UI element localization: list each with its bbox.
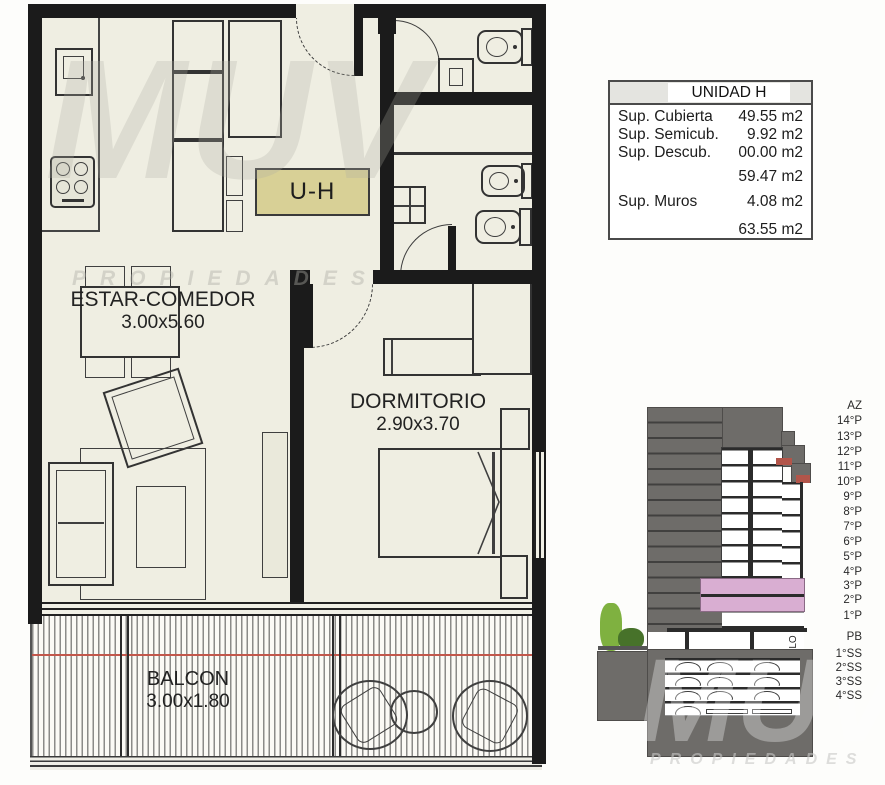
room-name: ESTAR-COMEDOR: [48, 288, 278, 312]
floor-label: 7°P: [812, 521, 862, 533]
pb-side-label: LO: [788, 632, 804, 652]
area-table-header: UNIDAD H: [610, 82, 811, 105]
tv-unit: [262, 432, 288, 578]
floor-stack-right: [782, 482, 800, 578]
toilet-tank: [519, 208, 532, 246]
dining-chair: [85, 266, 125, 288]
area-table-title: UNIDAD H: [668, 83, 790, 102]
floor-label: 5°P: [812, 551, 862, 563]
kitchen-counter: [42, 230, 100, 232]
unit-tag: U-H: [255, 168, 370, 216]
car-icon: [754, 677, 780, 686]
stack-column: [748, 448, 753, 578]
shower-partition: [394, 152, 532, 155]
wardrobe: [472, 275, 532, 375]
nightstand: [500, 555, 528, 599]
row-label: Sup. Semicub.: [618, 126, 719, 144]
floor-label: 1°SS: [812, 648, 862, 660]
row-value: 00.00 m2: [738, 144, 803, 162]
room-name: DORMITORIO: [333, 390, 503, 414]
row-label: Sup. Descub.: [618, 144, 711, 162]
floor-label: 11°P: [812, 461, 862, 473]
wall-segment: [394, 92, 532, 105]
floor-label: AZ: [812, 400, 862, 412]
table-row: Sup. Descub. 00.00 m2: [610, 144, 811, 162]
stove: [50, 156, 95, 208]
floor-label: 1°P: [812, 610, 862, 622]
floor-label: 3°SS: [812, 676, 862, 688]
red-accent: [796, 475, 810, 483]
balcony-red-line: [32, 654, 544, 656]
floor-label: 4°P: [812, 566, 862, 578]
balcony-deck: [30, 616, 542, 756]
vanity: [392, 186, 426, 224]
table-row: Sup. Cubierta 49.55 m2: [610, 108, 811, 126]
car-icon: [707, 677, 733, 686]
kitchen-cabinet: [172, 140, 224, 232]
bath-door-leaf: [448, 226, 456, 276]
floor-label: 8°P: [812, 506, 862, 518]
bedroom-window: [534, 452, 544, 558]
car-icon: [675, 677, 701, 686]
balcony-edge: [800, 482, 803, 578]
table-row: 63.55 m2: [610, 221, 811, 239]
floor-label: PB: [812, 631, 862, 643]
wall-segment: [380, 18, 394, 278]
balcony-glass-doors: [42, 602, 532, 616]
pb-level: [648, 632, 804, 652]
fridge-cabinet: [172, 20, 224, 72]
wall-segment: [290, 270, 304, 616]
row-label: Sup. Cubierta: [618, 108, 713, 126]
bathroom-sink: [438, 58, 474, 94]
balcony-table: [390, 690, 438, 734]
bed: [378, 448, 502, 558]
room-dims: 3.00x1.80: [113, 691, 263, 713]
sidewalk: [598, 646, 648, 650]
dining-chair: [131, 266, 171, 288]
pb-ceiling-slab: [667, 628, 807, 632]
room-dims: 3.00x5.60: [48, 312, 278, 334]
bed-headboard: [492, 452, 495, 554]
building-elevation: LO AZ 14°P 13°P 12°P 11°P 10°P 9°P 8°P 7…: [590, 398, 885, 773]
floor-label: 3°P: [812, 580, 862, 592]
stool: [226, 156, 243, 196]
row-value: 4.08 m2: [747, 193, 803, 211]
desk: [383, 338, 481, 376]
bedroom-door-leaf: [304, 284, 313, 348]
floor-label: 13°P: [812, 431, 862, 443]
room-dims: 2.90x3.70: [333, 414, 503, 436]
floor-label: 4°SS: [812, 690, 862, 702]
area-table: UNIDAD H Sup. Cubierta 49.55 m2 Sup. Sem…: [608, 80, 813, 240]
floor-label: 2°SS: [812, 662, 862, 674]
table-row: 59.47 m2: [610, 168, 811, 186]
car-icon: [754, 691, 780, 700]
lounge-chair: [452, 680, 528, 752]
floor-label: 6°P: [812, 536, 862, 548]
toilet: [475, 210, 521, 244]
storage-unit: [752, 709, 792, 714]
wall-segment: [28, 4, 42, 624]
sofa: [48, 462, 114, 586]
floor-label: 9°P: [812, 491, 862, 503]
building-left-tower: [648, 408, 722, 650]
room-name: BALCON: [113, 668, 263, 691]
car-icon: [675, 662, 701, 671]
floorplan-sheet: U-H ESTAR-COMEDOR 3.00x5.60: [0, 0, 885, 785]
balcony-rail: [30, 756, 542, 770]
toilet: [477, 30, 523, 64]
highlighted-unit-floors: [700, 578, 805, 612]
bed-cover-fold: [380, 450, 500, 556]
row-value: 59.47 m2: [738, 168, 803, 186]
row-value: 9.92 m2: [747, 126, 803, 144]
car-icon: [675, 706, 701, 715]
floor-label: 2°P: [812, 594, 862, 606]
car-icon: [707, 662, 733, 671]
bidet: [481, 165, 525, 197]
table-row: Sup. Semicub. 9.92 m2: [610, 126, 811, 144]
apartment-floor-plan: U-H ESTAR-COMEDOR 3.00x5.60: [28, 4, 546, 776]
underground-left: [598, 652, 648, 720]
entry-door-leaf: [354, 18, 363, 76]
wall-segment: [532, 614, 546, 764]
table-row: Sup. Muros 4.08 m2: [610, 193, 811, 211]
room-label-bedroom: DORMITORIO 2.90x3.70: [333, 390, 503, 436]
room-label-balcony: BALCON 3.00x1.80: [113, 668, 263, 713]
floor-label: 14°P: [812, 415, 862, 427]
car-icon: [707, 691, 733, 700]
stool: [226, 200, 243, 232]
room-label-living: ESTAR-COMEDOR 3.00x5.60: [48, 288, 278, 334]
car-icon: [675, 691, 701, 700]
car-icon: [754, 662, 780, 671]
wall-segment: [28, 4, 296, 18]
storage-unit: [706, 709, 748, 714]
floor-label: 12°P: [812, 446, 862, 458]
row-label: Sup. Muros: [618, 193, 697, 211]
red-accent: [776, 458, 792, 465]
row-value: 63.55 m2: [738, 221, 803, 239]
first-floor: [722, 610, 804, 630]
nightstand: [500, 408, 530, 450]
row-value: 49.55 m2: [738, 108, 803, 126]
kitchen-cabinet: [172, 72, 224, 140]
kitchen-counter: [98, 18, 100, 232]
dining-chair: [85, 356, 125, 378]
unit-tag-label: U-H: [290, 178, 336, 206]
floor-label: 10°P: [812, 476, 862, 488]
kitchen-sink: [55, 48, 93, 96]
kitchen-peninsula: [228, 20, 282, 138]
coffee-table: [136, 486, 186, 568]
